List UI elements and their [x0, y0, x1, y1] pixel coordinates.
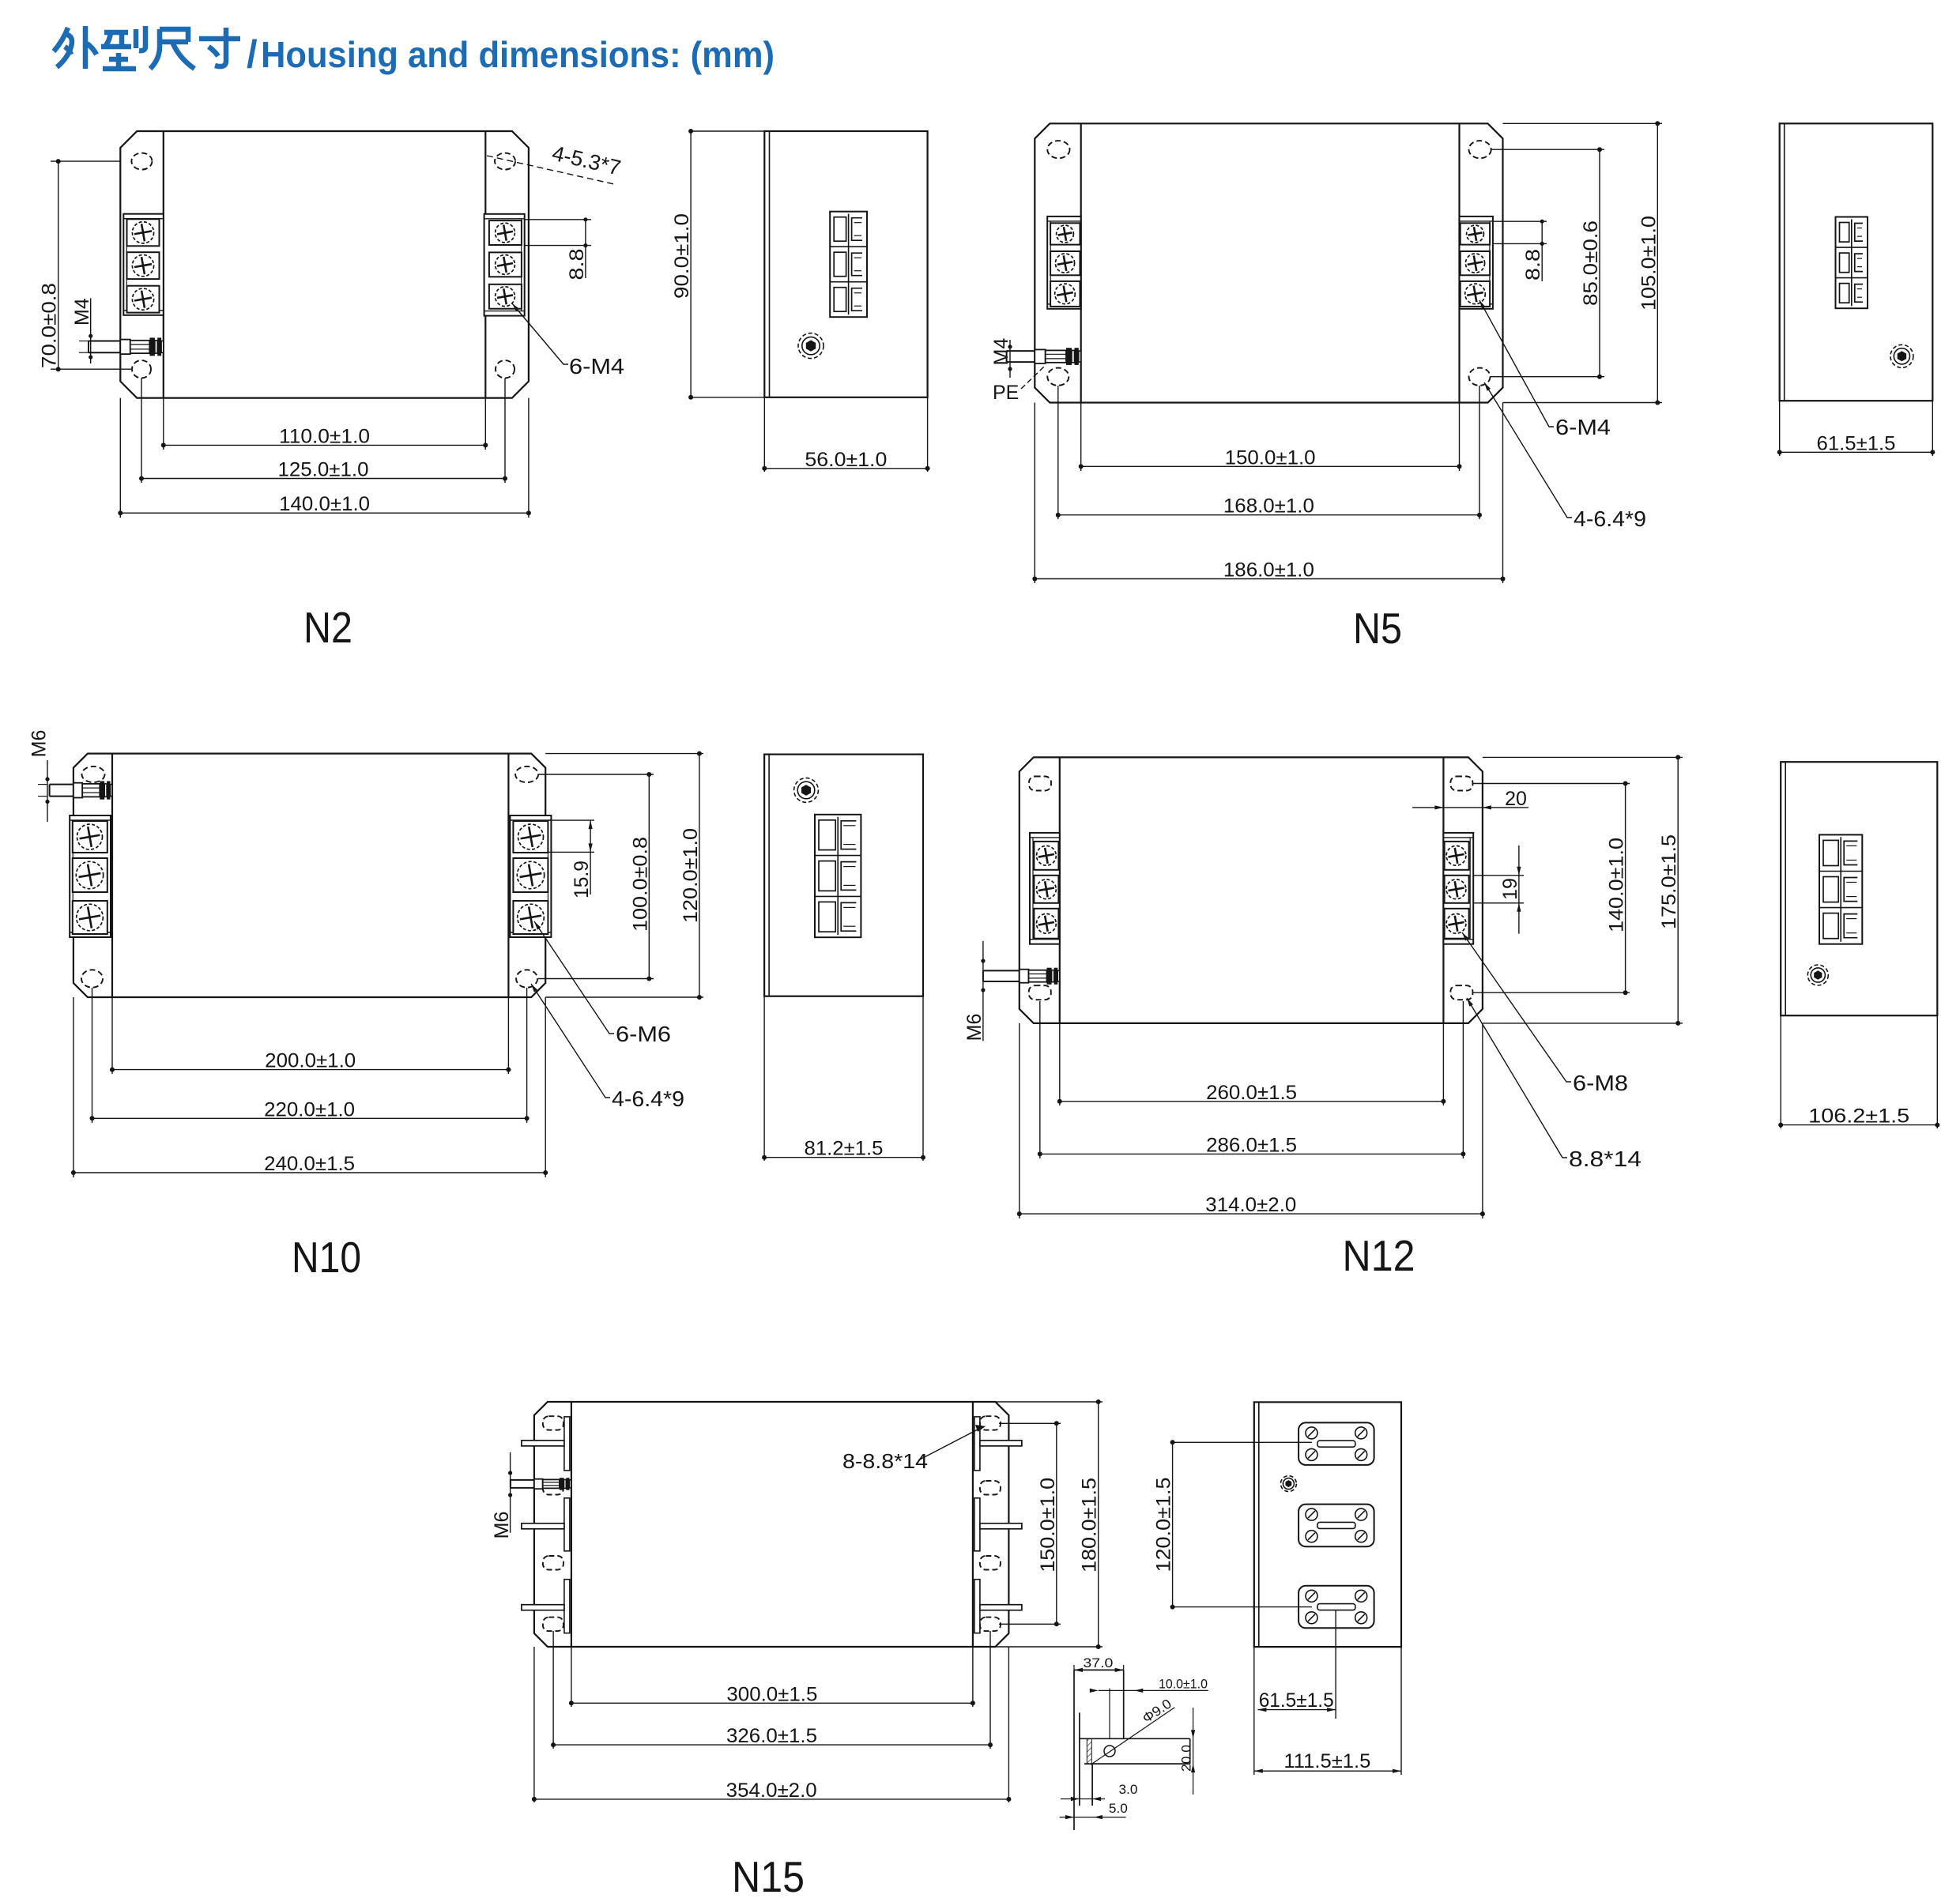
svg-text:300.0±1.5: 300.0±1.5 [726, 1683, 817, 1705]
svg-text:150.0±1.0: 150.0±1.0 [1225, 446, 1316, 469]
svg-text:M6: M6 [28, 730, 51, 758]
svg-text:240.0±1.5: 240.0±1.5 [264, 1153, 355, 1175]
svg-text:111.5±1.5: 111.5±1.5 [1283, 1750, 1370, 1772]
svg-text:125.0±1.0: 125.0±1.0 [278, 459, 369, 481]
svg-text:314.0±2.0: 314.0±2.0 [1205, 1194, 1296, 1216]
svg-text:5.0: 5.0 [1109, 1801, 1128, 1816]
svg-text:260.0±1.5: 260.0±1.5 [1206, 1082, 1297, 1104]
svg-text:61.5±1.5: 61.5±1.5 [1259, 1689, 1334, 1712]
svg-text:6-M4: 6-M4 [1555, 415, 1611, 439]
svg-text:20: 20 [1505, 788, 1527, 810]
svg-text:100.0±0.8: 100.0±0.8 [629, 837, 651, 932]
svg-text:N15: N15 [732, 1852, 805, 1901]
svg-text:70.0±0.8: 70.0±0.8 [39, 283, 61, 368]
svg-text:N5: N5 [1353, 604, 1402, 653]
svg-text:354.0±2.0: 354.0±2.0 [726, 1780, 817, 1802]
svg-text:M6: M6 [963, 1014, 986, 1041]
svg-text:4-6.4*9: 4-6.4*9 [612, 1087, 684, 1111]
svg-text:M4: M4 [71, 298, 93, 326]
svg-text:90.0±1.0: 90.0±1.0 [671, 213, 693, 299]
svg-text:150.0±1.0: 150.0±1.0 [1037, 1478, 1059, 1572]
svg-text:6-M6: 6-M6 [616, 1022, 671, 1046]
svg-text:PE: PE [993, 382, 1019, 404]
svg-text:286.0±1.5: 286.0±1.5 [1206, 1134, 1297, 1156]
svg-text:20.0: 20.0 [1179, 1745, 1194, 1772]
svg-text:6-M4: 6-M4 [569, 354, 624, 379]
svg-text:10.0±1.0: 10.0±1.0 [1159, 1677, 1208, 1692]
svg-text:106.2±1.5: 106.2±1.5 [1808, 1105, 1909, 1128]
svg-text:105.0±1.0: 105.0±1.0 [1638, 216, 1660, 311]
svg-text:56.0±1.0: 56.0±1.0 [805, 449, 887, 471]
svg-text:120.0±1.0: 120.0±1.0 [680, 828, 702, 923]
svg-text:3.0: 3.0 [1119, 1782, 1138, 1797]
svg-text:186.0±1.0: 186.0±1.0 [1223, 559, 1314, 582]
svg-text:N12: N12 [1343, 1231, 1415, 1280]
svg-text:200.0±1.0: 200.0±1.0 [265, 1050, 356, 1072]
svg-text:120.0±1.5: 120.0±1.5 [1153, 1478, 1175, 1572]
svg-text:8-8.8*14: 8-8.8*14 [842, 1449, 928, 1473]
svg-text:8.8: 8.8 [566, 249, 588, 281]
svg-text:15.9: 15.9 [571, 861, 593, 898]
svg-text:37.0: 37.0 [1083, 1655, 1113, 1670]
svg-text:M4: M4 [990, 338, 1012, 366]
svg-text:8.8*14: 8.8*14 [1569, 1147, 1641, 1171]
svg-text:M6: M6 [491, 1512, 513, 1539]
svg-text:180.0±1.5: 180.0±1.5 [1079, 1478, 1101, 1572]
svg-text:8.8: 8.8 [1522, 249, 1544, 281]
svg-text:6-M8: 6-M8 [1573, 1071, 1628, 1095]
svg-text:220.0±1.0: 220.0±1.0 [264, 1098, 355, 1120]
svg-text:85.0±0.6: 85.0±0.6 [1580, 220, 1602, 306]
svg-text:175.0±1.5: 175.0±1.5 [1658, 834, 1680, 929]
svg-text:N2: N2 [303, 603, 352, 652]
svg-text:N10: N10 [292, 1233, 361, 1282]
svg-text:/: / [247, 33, 258, 76]
svg-text:61.5±1.5: 61.5±1.5 [1817, 432, 1896, 454]
svg-text:168.0±1.0: 168.0±1.0 [1223, 495, 1314, 518]
svg-text:110.0±1.0: 110.0±1.0 [279, 425, 370, 447]
svg-text:140.0±1.0: 140.0±1.0 [279, 493, 370, 515]
svg-text:4-6.4*9: 4-6.4*9 [1574, 507, 1646, 531]
svg-text:81.2±1.5: 81.2±1.5 [805, 1138, 884, 1160]
svg-text:19: 19 [1499, 878, 1521, 900]
svg-text:Housing and dimensions: (mm): Housing and dimensions: (mm) [261, 34, 775, 75]
svg-text:140.0±1.0: 140.0±1.0 [1606, 838, 1628, 932]
svg-text:326.0±1.5: 326.0±1.5 [726, 1725, 817, 1747]
